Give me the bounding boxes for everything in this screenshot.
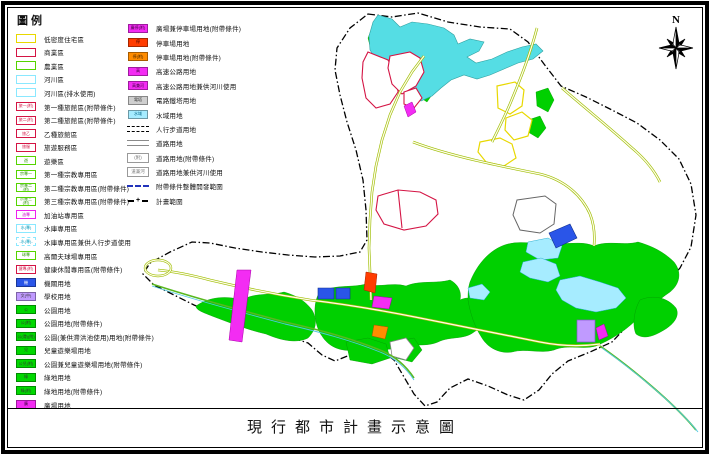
legend-swatch: 旅乙	[14, 129, 38, 138]
legend-item-label: 公園用地	[44, 305, 71, 315]
legend-swatch: 兒	[14, 346, 38, 355]
legend-swatch: -水(專)-	[14, 237, 38, 246]
legend-swatch	[14, 61, 38, 70]
legend-item: 公(滯)(附)公園(兼供滯洪池使用)用地(附帶條件)	[14, 330, 154, 344]
legend-item: +計畫範圍	[126, 194, 241, 208]
legend-swatch: 公(滯)(附)	[14, 332, 38, 341]
legend-swatch: 水(專)	[14, 224, 38, 233]
legend-swatch: 旅二(附)	[14, 116, 38, 125]
legend-item-label: 道路用地兼供河川使用	[156, 167, 223, 177]
legend-swatch: 公兒(附)	[14, 359, 38, 368]
legend-swatch: 遊	[14, 156, 38, 165]
legend-item-label: 人行步道用地	[156, 124, 196, 134]
legend-item-label: 低密度住宅區	[44, 34, 84, 44]
legend-item: 道兼河道路用地兼供河川使用	[126, 165, 241, 179]
legend-item: 機機關用地	[14, 276, 154, 290]
legend-item: 文(中)學校用地	[14, 289, 154, 303]
legend-swatch: 旅一(附)	[14, 102, 38, 111]
legend-item: 附帶條件整體開發範圍	[126, 179, 241, 193]
legend-item: 兒兒童遊樂場用地	[14, 344, 154, 358]
legend-swatch: 高兼河	[126, 81, 150, 90]
legend-swatch: 球專	[14, 251, 38, 260]
map-sheet: { "title": "現行都市計畫示意圖", "north_label": "…	[0, 0, 710, 455]
legend-swatch: 綠(附)	[14, 386, 38, 395]
legend-item-label: 旅遊服務區	[44, 142, 78, 152]
north-arrow-icon: N	[659, 14, 693, 69]
legend-swatch	[14, 88, 38, 97]
legend-item: 高高速公路用地	[126, 64, 241, 78]
legend-swatch: +	[126, 199, 150, 203]
legend-swatch: 道兼河	[126, 167, 150, 177]
legend-item: 公公園用地	[14, 303, 154, 317]
legend-swatch: 公	[14, 305, 38, 314]
legend-swatch	[14, 48, 38, 57]
page-title: 現行都市計畫示意圖	[0, 416, 710, 437]
legend-column-2: 廣停(附)廣場兼停車場用地(附帶條件)停停車場用地停(附)停車場用地(附帶條件)…	[126, 21, 241, 208]
legend-item-label: 學校用地	[44, 291, 71, 301]
legend-item-label: 公園(兼供滯洪池使用)用地(附帶條件)	[44, 332, 154, 342]
legend-item: 綠(附)綠地用地(附帶條件)	[14, 384, 154, 398]
legend-swatch	[126, 185, 150, 187]
legend-swatch: 水域	[126, 110, 150, 119]
legend-swatch: 停	[126, 38, 150, 47]
legend-item: (附)道路用地(附帶條件)	[126, 151, 241, 165]
north-label: N	[672, 14, 680, 26]
legend-item-label: 第三種宗教專用區(附帶條件)	[44, 196, 129, 206]
legend-item-label: 健康休閒專用區(附帶條件)	[44, 264, 122, 274]
legend-item-label: 第一種宗教專用區	[44, 169, 98, 179]
legend-item-label: 兒童遊樂場用地	[44, 345, 91, 355]
legend-item: 油專加油站專用區	[14, 208, 154, 222]
legend-title: 圖例	[17, 12, 45, 28]
legend-item-label: 水庫專用區	[44, 223, 78, 233]
legend-item: 水域水域用地	[126, 107, 241, 121]
legend-item: 公(附)公園用地(附帶條件)	[14, 316, 154, 330]
legend-swatch: 公(附)	[14, 319, 38, 328]
legend-item-label: 農業區	[44, 61, 64, 71]
legend-item-label: 加油站專用區	[44, 210, 84, 220]
legend-item-label: 附帶條件整體開發範圍	[156, 181, 223, 191]
legend-item-label: 綠地用地	[44, 372, 71, 382]
legend-item-label: 高速公路用地兼供河川使用	[156, 81, 236, 91]
legend-swatch	[126, 126, 150, 132]
legend-swatch: 機	[14, 278, 38, 287]
legend-item: 道路用地	[126, 136, 241, 150]
legend-item-label: 水庫專用區兼供人行步道使用	[44, 237, 131, 247]
legend-item-label: 計畫範圍	[156, 196, 183, 206]
legend-item: 廣廣場用地	[14, 398, 154, 412]
legend-swatch: 廣停(附)	[126, 24, 150, 33]
legend-item-label: 遊樂區	[44, 156, 64, 166]
legend-item-label: 第一種旅館區(附帶條件)	[44, 102, 116, 112]
legend-swatch: 油專	[14, 210, 38, 219]
legend-item-label: 河川區(排水使用)	[44, 88, 96, 98]
legend-item-label: 乙種旅館區	[44, 129, 78, 139]
legend-item: 公兒(附)公園兼兒童遊樂場用地(附帶條件)	[14, 357, 154, 371]
legend-swatch: 宗專二(附)	[14, 183, 38, 192]
legend-item-label: 水域用地	[156, 110, 183, 120]
legend-item: -水(專)-水庫專用區兼供人行步道使用	[14, 235, 154, 249]
legend-item-label: 停車場用地	[156, 38, 190, 48]
legend-item: 停(附)停車場用地(附帶條件)	[126, 50, 241, 64]
legend-item-label: 高爾夫球場專用區	[44, 251, 98, 261]
legend-item: 廣停(附)廣場兼停車場用地(附帶條件)	[126, 21, 241, 35]
legend-swatch: 綠	[14, 373, 38, 382]
legend-swatch: 文(中)	[14, 292, 38, 301]
legend-item-label: 第二種宗教專用區(附帶條件)	[44, 183, 129, 193]
legend-item: 球專高爾夫球場專用區	[14, 249, 154, 263]
legend-item-label: 公園用地(附帶條件)	[44, 318, 102, 328]
legend-swatch	[126, 140, 150, 146]
legend-swatch	[14, 34, 38, 43]
legend-item-label: 道路用地	[156, 138, 183, 148]
legend-item: 電塔電路鐵塔用地	[126, 93, 241, 107]
legend-swatch: 健專(附)	[14, 265, 38, 274]
legend-item-label: 停車場用地(附帶條件)	[156, 52, 221, 62]
legend-swatch: 宗專三(附)	[14, 197, 38, 206]
legend-item-label: 綠地用地(附帶條件)	[44, 386, 102, 396]
legend-item: 人行步道用地	[126, 122, 241, 136]
legend-item-label: 高速公路用地	[156, 66, 196, 76]
legend-item-label: 第二種旅館區(附帶條件)	[44, 115, 116, 125]
legend-item: 高兼河高速公路用地兼供河川使用	[126, 79, 241, 93]
legend-item: 綠綠地用地	[14, 371, 154, 385]
legend-item-label: 廣場兼停車場用地(附帶條件)	[156, 23, 241, 33]
legend-swatch	[14, 75, 38, 84]
legend-item-label: 機關用地	[44, 278, 71, 288]
legend-item-label: 電路鐵塔用地	[156, 95, 196, 105]
legend-item: 停停車場用地	[126, 35, 241, 49]
legend-swatch: 高	[126, 67, 150, 76]
legend-item-label: 河川區	[44, 74, 64, 84]
legend-item-label: 商業區	[44, 47, 64, 57]
legend-item: 健專(附)健康休閒專用區(附帶條件)	[14, 262, 154, 276]
legend-item-label: 公園兼兒童遊樂場用地(附帶條件)	[44, 359, 143, 369]
legend-swatch: 旅服	[14, 143, 38, 152]
legend-swatch: 宗專一	[14, 170, 38, 179]
legend-swatch: 停(附)	[126, 52, 150, 61]
title-separator	[8, 408, 702, 409]
legend-swatch: 電塔	[126, 96, 150, 105]
legend-item-label: 道路用地(附帶條件)	[156, 153, 214, 163]
legend-swatch: (附)	[126, 153, 150, 163]
legend-item: 水(專)水庫專用區	[14, 222, 154, 236]
